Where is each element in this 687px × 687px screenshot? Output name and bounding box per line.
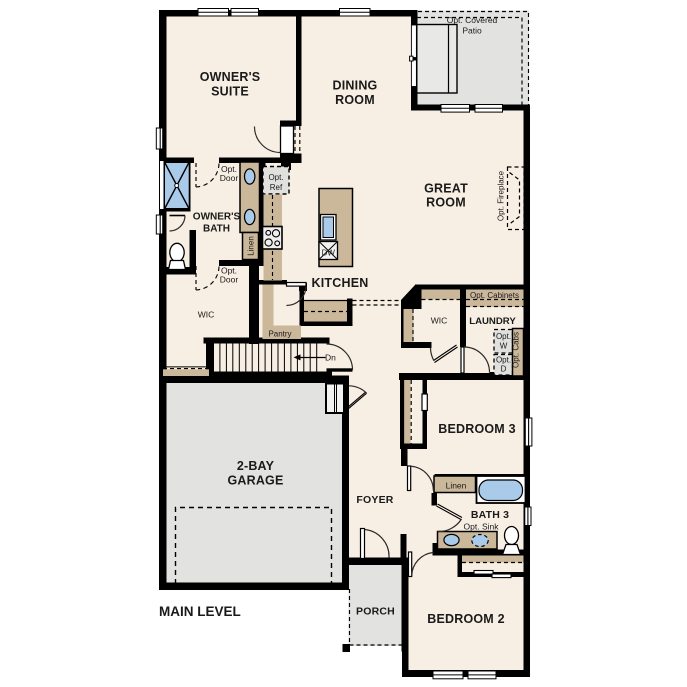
svg-text:Linen: Linen [446,481,467,491]
svg-text:ROOM: ROOM [426,196,466,210]
svg-text:GARAGE: GARAGE [227,474,283,488]
svg-text:Opt.: Opt. [496,356,511,365]
svg-text:BATH: BATH [203,224,230,235]
svg-text:LAUNDRY: LAUNDRY [469,316,516,327]
svg-text:Dn: Dn [325,353,336,363]
svg-text:OWNER'S: OWNER'S [200,70,261,84]
svg-text:KITCHEN: KITCHEN [312,276,369,290]
svg-text:DINING: DINING [333,79,378,93]
svg-text:FOYER: FOYER [356,494,393,506]
svg-text:Opt. Fireplace: Opt. Fireplace [497,170,506,221]
svg-text:PORCH: PORCH [356,606,395,618]
svg-text:BEDROOM 2: BEDROOM 2 [427,612,505,626]
svg-text:Opt.: Opt. [496,332,511,341]
svg-text:WIC: WIC [198,310,215,320]
svg-text:D: D [501,365,507,374]
svg-text:Opt.: Opt. [268,173,283,182]
svg-text:Opt. Covered: Opt. Covered [447,15,498,25]
svg-text:Patio: Patio [462,26,482,36]
svg-text:DW: DW [322,249,336,258]
svg-text:Opt. Cabs: Opt. Cabs [512,332,521,368]
svg-text:MAIN LEVEL: MAIN LEVEL [159,604,241,619]
svg-text:WIC: WIC [431,316,448,326]
svg-text:GREAT: GREAT [424,182,468,196]
svg-text:W: W [500,342,508,351]
svg-text:BATH 3: BATH 3 [471,509,509,521]
svg-text:Linen: Linen [247,236,256,256]
svg-text:Door: Door [220,275,239,285]
svg-text:BEDROOM 3: BEDROOM 3 [438,422,516,436]
svg-text:Pantry: Pantry [268,330,291,339]
svg-text:Ref: Ref [270,183,283,192]
svg-text:SUITE: SUITE [211,85,249,99]
svg-text:2-BAY: 2-BAY [237,459,275,473]
svg-text:Opt. Sink: Opt. Sink [464,522,500,532]
svg-text:ROOM: ROOM [335,93,375,107]
svg-text:Opt. Cabinets: Opt. Cabinets [470,291,519,300]
svg-text:Door: Door [220,173,239,183]
svg-text:OWNER'S: OWNER'S [193,212,241,223]
